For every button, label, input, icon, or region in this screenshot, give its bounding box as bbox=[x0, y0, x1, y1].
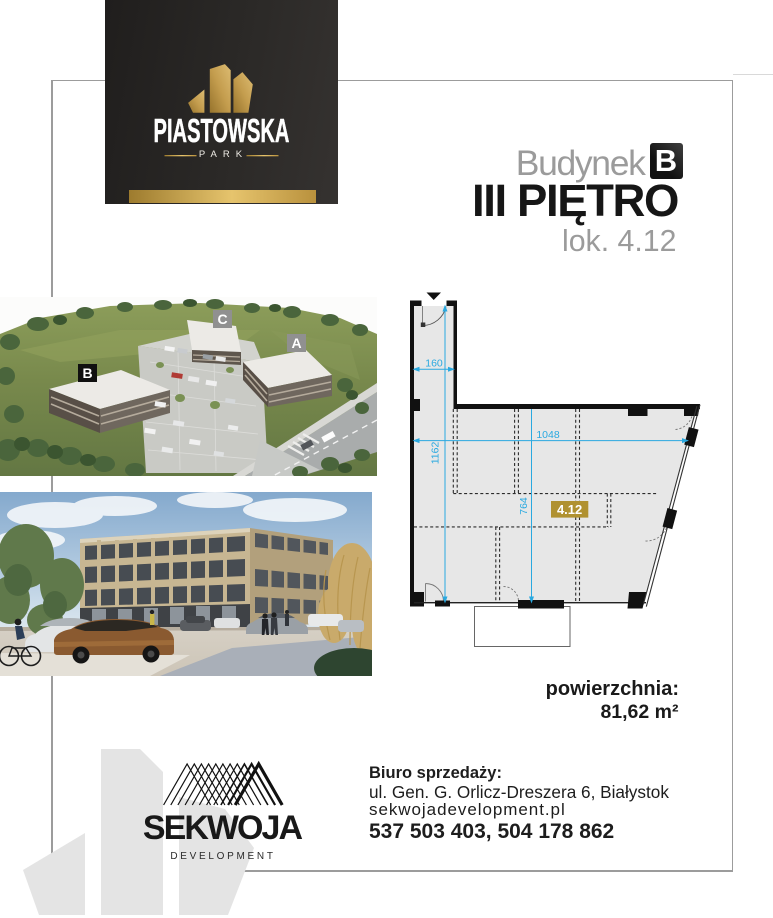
svg-text:1048: 1048 bbox=[536, 429, 560, 441]
svg-text:764: 764 bbox=[518, 497, 530, 515]
svg-text:A: A bbox=[291, 335, 301, 351]
svg-text:B: B bbox=[82, 365, 92, 381]
svg-text:C: C bbox=[217, 311, 227, 327]
svg-text:160: 160 bbox=[425, 358, 443, 370]
svg-text:4.12: 4.12 bbox=[557, 502, 582, 517]
svg-text:1162: 1162 bbox=[430, 442, 442, 465]
